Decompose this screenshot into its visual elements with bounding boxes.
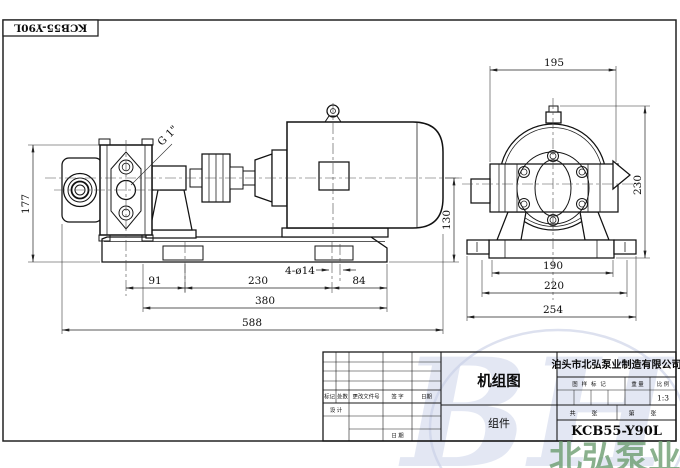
end-view: 195 230 190 220 254 xyxy=(462,57,650,321)
side-view: G 1" xyxy=(20,103,462,334)
rev-sign-label: 签 字 xyxy=(391,393,403,401)
svg-text:195: 195 xyxy=(544,57,564,69)
svg-text:84: 84 xyxy=(352,275,366,287)
weight-label: 重 量 xyxy=(631,380,644,388)
rev-mark-label: 标记 xyxy=(324,393,335,401)
dim-190: 190 xyxy=(492,260,613,277)
rev-date-label: 日期 xyxy=(421,394,432,401)
port-thread-label: G 1" xyxy=(155,123,180,148)
svg-text:230: 230 xyxy=(248,275,268,287)
svg-text:380: 380 xyxy=(255,295,275,307)
dim-row-91-230-84: 91 230 84 xyxy=(126,264,387,292)
part-label: 组件 xyxy=(488,416,510,430)
drawing-number-box: KCB55-Y90L xyxy=(3,20,98,36)
sheet-no-label: 第 张 xyxy=(629,410,664,418)
design-label: 设 计 xyxy=(330,406,343,414)
dim-4xo14: 4-ø14 xyxy=(285,265,356,277)
pump-assembly-drawing: BH KCB55-Y90L xyxy=(0,0,680,468)
svg-text:177: 177 xyxy=(20,194,32,214)
svg-text:91: 91 xyxy=(148,275,161,287)
drawing-svg: BH KCB55-Y90L xyxy=(0,0,680,468)
drawing-title: 机组图 xyxy=(477,372,521,390)
company-name: 泊头市北弘泵业制造有限公司 xyxy=(552,358,680,371)
rev-file-label: 更改文件号 xyxy=(353,393,381,401)
svg-text:230: 230 xyxy=(632,175,644,195)
svg-text:130: 130 xyxy=(441,210,453,230)
mark-label: 图样标记 xyxy=(572,380,610,388)
svg-text:588: 588 xyxy=(242,317,262,329)
sheets-total-label: 共 张 xyxy=(570,410,605,418)
brand-watermark: 北弘泵业 xyxy=(549,439,680,468)
scale-value: 1:3 xyxy=(657,394,669,403)
rev-count-label: 处数 xyxy=(337,393,348,401)
scale-label: 比 例 xyxy=(657,380,669,388)
drawing-number-label: KCB55-Y90L xyxy=(13,22,87,34)
svg-text:190: 190 xyxy=(543,260,563,272)
model-number: KCB55-Y90L xyxy=(571,424,662,439)
date2-label: 日 期 xyxy=(391,433,403,440)
svg-text:4-ø14: 4-ø14 xyxy=(285,265,315,277)
electric-motor xyxy=(282,105,443,237)
svg-text:220: 220 xyxy=(544,280,564,292)
svg-text:254: 254 xyxy=(543,304,563,316)
